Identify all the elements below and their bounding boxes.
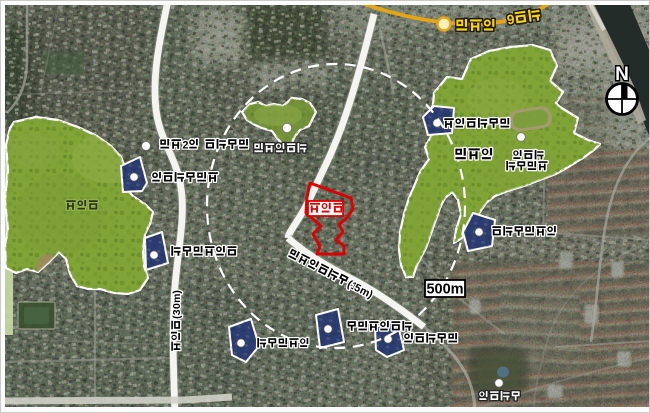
svg-text:3: 3: [171, 309, 183, 315]
svg-text:0: 0: [171, 303, 183, 309]
svg-text:500m: 500m: [426, 282, 463, 298]
svg-text:N: N: [615, 64, 629, 85]
svg-text:): ): [171, 290, 183, 294]
svg-text:2: 2: [182, 140, 188, 152]
svg-text:m: m: [171, 293, 183, 302]
